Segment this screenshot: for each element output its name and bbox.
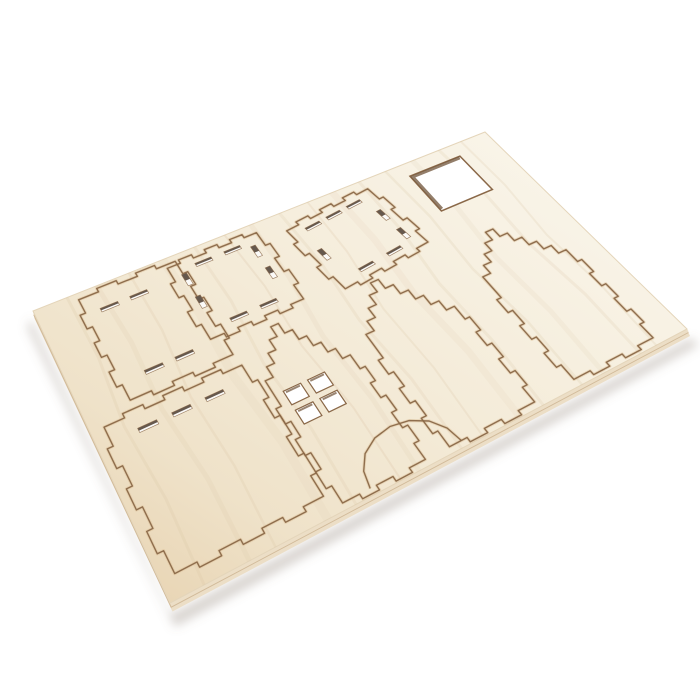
product-photo bbox=[0, 0, 700, 700]
laser-cut-plywood-sheet-photo bbox=[0, 0, 700, 700]
